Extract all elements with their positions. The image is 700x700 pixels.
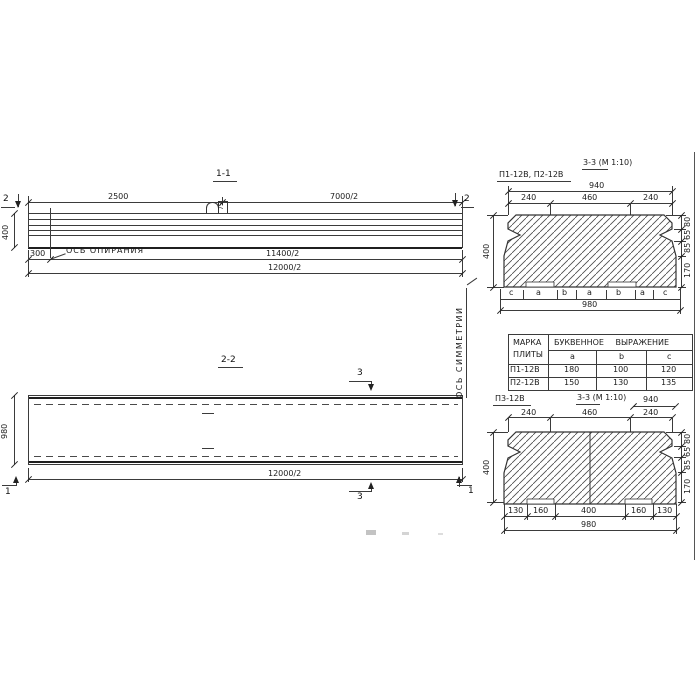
letter-row-tick xyxy=(635,290,636,299)
extension-line xyxy=(676,504,677,520)
dim-label-240: 240 xyxy=(643,194,658,202)
beam-line xyxy=(28,230,462,231)
letter-row-tick xyxy=(653,290,654,299)
dim-label-65: 65 xyxy=(684,230,692,240)
table-cell: 100 xyxy=(613,366,628,374)
dim-label-400: 400 xyxy=(2,225,10,240)
dim-line xyxy=(504,516,676,517)
dim-label-240: 240 xyxy=(521,409,536,417)
hidden-line-dashed xyxy=(34,456,458,457)
extension-line xyxy=(666,215,686,216)
dim-line-vertical xyxy=(14,213,15,248)
dim-line-vertical xyxy=(493,215,494,287)
center-dash xyxy=(202,413,214,414)
slab-top-edge xyxy=(28,395,462,396)
cut-marker-2-left: 2 xyxy=(3,195,9,204)
dim-line-vertical xyxy=(681,215,682,287)
dim-line-vertical xyxy=(14,395,15,465)
section-2-2-title: 2-2 xyxy=(221,356,236,365)
letter-label-a: a xyxy=(587,289,592,297)
table-border xyxy=(508,334,692,335)
dim-label-240: 240 xyxy=(521,194,536,202)
loop-label: 75 xyxy=(219,202,225,210)
table-border xyxy=(646,350,647,391)
table-row-mark: П2-12В xyxy=(510,379,540,387)
dim-line xyxy=(508,417,672,418)
letter-row-tick xyxy=(606,290,607,299)
dim-line xyxy=(504,530,676,531)
table-row-mark: П1-12В xyxy=(510,366,540,374)
cut-marker-1-right: 1 xyxy=(468,487,474,496)
dim-label-12000-2: 12000/2 xyxy=(268,470,301,478)
extension-line xyxy=(487,215,508,216)
extension-line xyxy=(504,520,505,534)
extension-line xyxy=(487,287,504,288)
table-border xyxy=(548,350,692,351)
cut-marker-3-top: 3 xyxy=(357,369,363,378)
table-cell: 150 xyxy=(564,379,579,387)
cut-marker-underline xyxy=(2,485,17,486)
cut-marker-3-bottom: 3 xyxy=(357,493,363,502)
drawing-canvas: 1-1 2 2500 7000/2 2 75 400 300 ОСЬ ОПИРА… xyxy=(0,0,700,700)
dim-label-170: 170 xyxy=(684,263,692,278)
dim-label-11400-2: 11400/2 xyxy=(266,250,299,258)
dim-line-vertical xyxy=(493,432,494,502)
beam-left-edge xyxy=(28,213,29,248)
title-underline xyxy=(576,404,600,405)
table-cell: 135 xyxy=(661,379,676,387)
dim-label-85: 85 xyxy=(684,460,692,470)
letter-label-a: a xyxy=(536,289,541,297)
dim-label-80: 80 xyxy=(684,217,692,227)
letter-label-b: b xyxy=(562,289,567,297)
dim-label-2500: 2500 xyxy=(108,193,128,201)
cut-marker-2-right: 2 xyxy=(464,195,470,204)
label-underline xyxy=(497,181,571,182)
beam-line xyxy=(28,235,462,236)
dim-tick xyxy=(11,461,18,468)
support-axis-label: ОСЬ ОПИРАНИЯ xyxy=(66,247,144,255)
dim-label-85: 85 xyxy=(684,243,692,253)
dim-line xyxy=(500,310,680,311)
title-underline xyxy=(213,181,237,182)
letter-label-c: c xyxy=(509,289,513,297)
arrow-up-icon xyxy=(13,476,19,483)
arrow-down-icon xyxy=(368,384,374,391)
table-border xyxy=(548,334,549,391)
cut-marker-1-left: 1 xyxy=(5,488,11,497)
letter-row-tick xyxy=(523,290,524,299)
table-header-marka: МАРКА xyxy=(513,339,541,347)
extension-line xyxy=(527,504,528,520)
extension-line xyxy=(555,504,556,520)
leader-line xyxy=(467,278,477,286)
dim-label-160: 160 xyxy=(631,507,646,515)
dim-line xyxy=(508,203,672,204)
slab-left-edge xyxy=(28,395,29,465)
label-underline xyxy=(493,405,531,406)
arrow-down-icon xyxy=(452,200,458,207)
cut-marker-underline xyxy=(461,207,474,208)
beam-right-edge xyxy=(462,213,463,248)
dim-label-980: 980 xyxy=(581,521,596,529)
symmetry-axis-line xyxy=(466,288,467,398)
dim-label-400: 400 xyxy=(483,244,491,259)
extension-line xyxy=(504,504,505,520)
slab-top-edge-thick xyxy=(28,397,462,399)
dim-label-12000-2: 12000/2 xyxy=(268,264,301,272)
center-dash xyxy=(202,448,214,449)
print-smudge xyxy=(402,532,409,535)
dim-label-460: 460 xyxy=(582,409,597,417)
dim-label-300: 300 xyxy=(30,250,45,258)
title-underline xyxy=(582,169,608,170)
beam-line xyxy=(28,219,462,220)
slab-right-edge xyxy=(462,395,463,465)
arrow-up-icon xyxy=(368,482,374,489)
extension-line xyxy=(487,432,508,433)
section-1-1-title: 1-1 xyxy=(216,170,231,179)
dim-line xyxy=(633,406,675,407)
section-3-3-title: 3-3 (М 1:10) xyxy=(583,159,632,167)
extension-line xyxy=(487,502,504,503)
dim-label-170: 170 xyxy=(684,479,692,494)
dim-label-400: 400 xyxy=(483,460,491,475)
dim-label-7000-2: 7000/2 xyxy=(330,193,358,201)
dim-label-980: 980 xyxy=(1,424,9,439)
cut-marker-underline xyxy=(1,207,15,208)
table-cell: 180 xyxy=(564,366,579,374)
letter-label-c: c xyxy=(663,289,667,297)
table-col-a: a xyxy=(570,353,575,361)
symmetry-axis-label: ОСЬ СИММЕТРИИ xyxy=(456,306,464,398)
table-col-b: b xyxy=(619,353,624,361)
table-border xyxy=(508,334,509,391)
extension-line xyxy=(653,504,654,520)
letter-row-tick xyxy=(576,290,577,299)
dim-line-vertical xyxy=(681,432,682,502)
dim-line xyxy=(28,479,462,480)
beam-top-edge xyxy=(28,213,462,214)
table-cell: 130 xyxy=(613,379,628,387)
cross-section-hatched xyxy=(498,428,682,508)
extension-line xyxy=(666,432,686,433)
letter-label-a: a xyxy=(640,289,645,297)
cross-section-hatched xyxy=(498,211,682,291)
dim-tick xyxy=(11,244,18,251)
arrow-down-icon xyxy=(15,201,21,208)
extension-line xyxy=(462,196,463,213)
dim-line xyxy=(28,273,462,274)
support-axis-line xyxy=(50,208,51,258)
letter-row-tick xyxy=(557,290,558,299)
table-col-c: c xyxy=(667,353,671,361)
plate-marks-label: П1-12В, П2-12В xyxy=(499,171,563,179)
print-smudge xyxy=(438,533,443,535)
arrow-up-icon xyxy=(456,476,462,483)
hidden-line-dashed xyxy=(34,404,458,405)
table-border xyxy=(596,350,597,391)
title-underline xyxy=(218,367,243,368)
table-border xyxy=(692,334,693,391)
sheet-border-line xyxy=(694,152,695,560)
dim-line xyxy=(28,259,462,260)
letter-label-b: b xyxy=(616,289,621,297)
plate-mark-label: П3-12В xyxy=(495,395,525,403)
dim-label-240: 240 xyxy=(643,409,658,417)
dim-line xyxy=(508,191,672,192)
dim-label-130: 130 xyxy=(508,507,523,515)
beam-line xyxy=(28,225,462,226)
dim-label-130: 130 xyxy=(657,507,672,515)
dim-label-80: 80 xyxy=(684,434,692,444)
extension-line xyxy=(676,520,677,534)
dim-label-460: 460 xyxy=(582,194,597,202)
slab-bottom-edge xyxy=(28,464,462,465)
dim-tick xyxy=(672,403,679,410)
table-group-header: БУКВЕННОЕ ВЫРАЖЕНИЕ xyxy=(554,339,669,347)
dim-label-940: 940 xyxy=(589,182,604,190)
dim-label-940: 940 xyxy=(643,396,658,404)
extension-line xyxy=(625,504,626,520)
table-header-plity: ПЛИТЫ xyxy=(513,351,543,359)
dim-label-160: 160 xyxy=(533,507,548,515)
dim-label-65: 65 xyxy=(684,447,692,457)
dim-label-980: 980 xyxy=(582,301,597,309)
slab-bottom-edge-thick xyxy=(28,461,462,463)
dim-line xyxy=(28,202,462,203)
table-cell: 120 xyxy=(661,366,676,374)
table-border xyxy=(508,390,692,391)
print-smudge xyxy=(366,530,376,535)
extension-line xyxy=(28,196,29,213)
section-3-3-title: 3-3 (М 1:10) xyxy=(577,394,626,402)
dim-label-400: 400 xyxy=(581,507,596,515)
cut-marker-underline xyxy=(349,381,372,382)
